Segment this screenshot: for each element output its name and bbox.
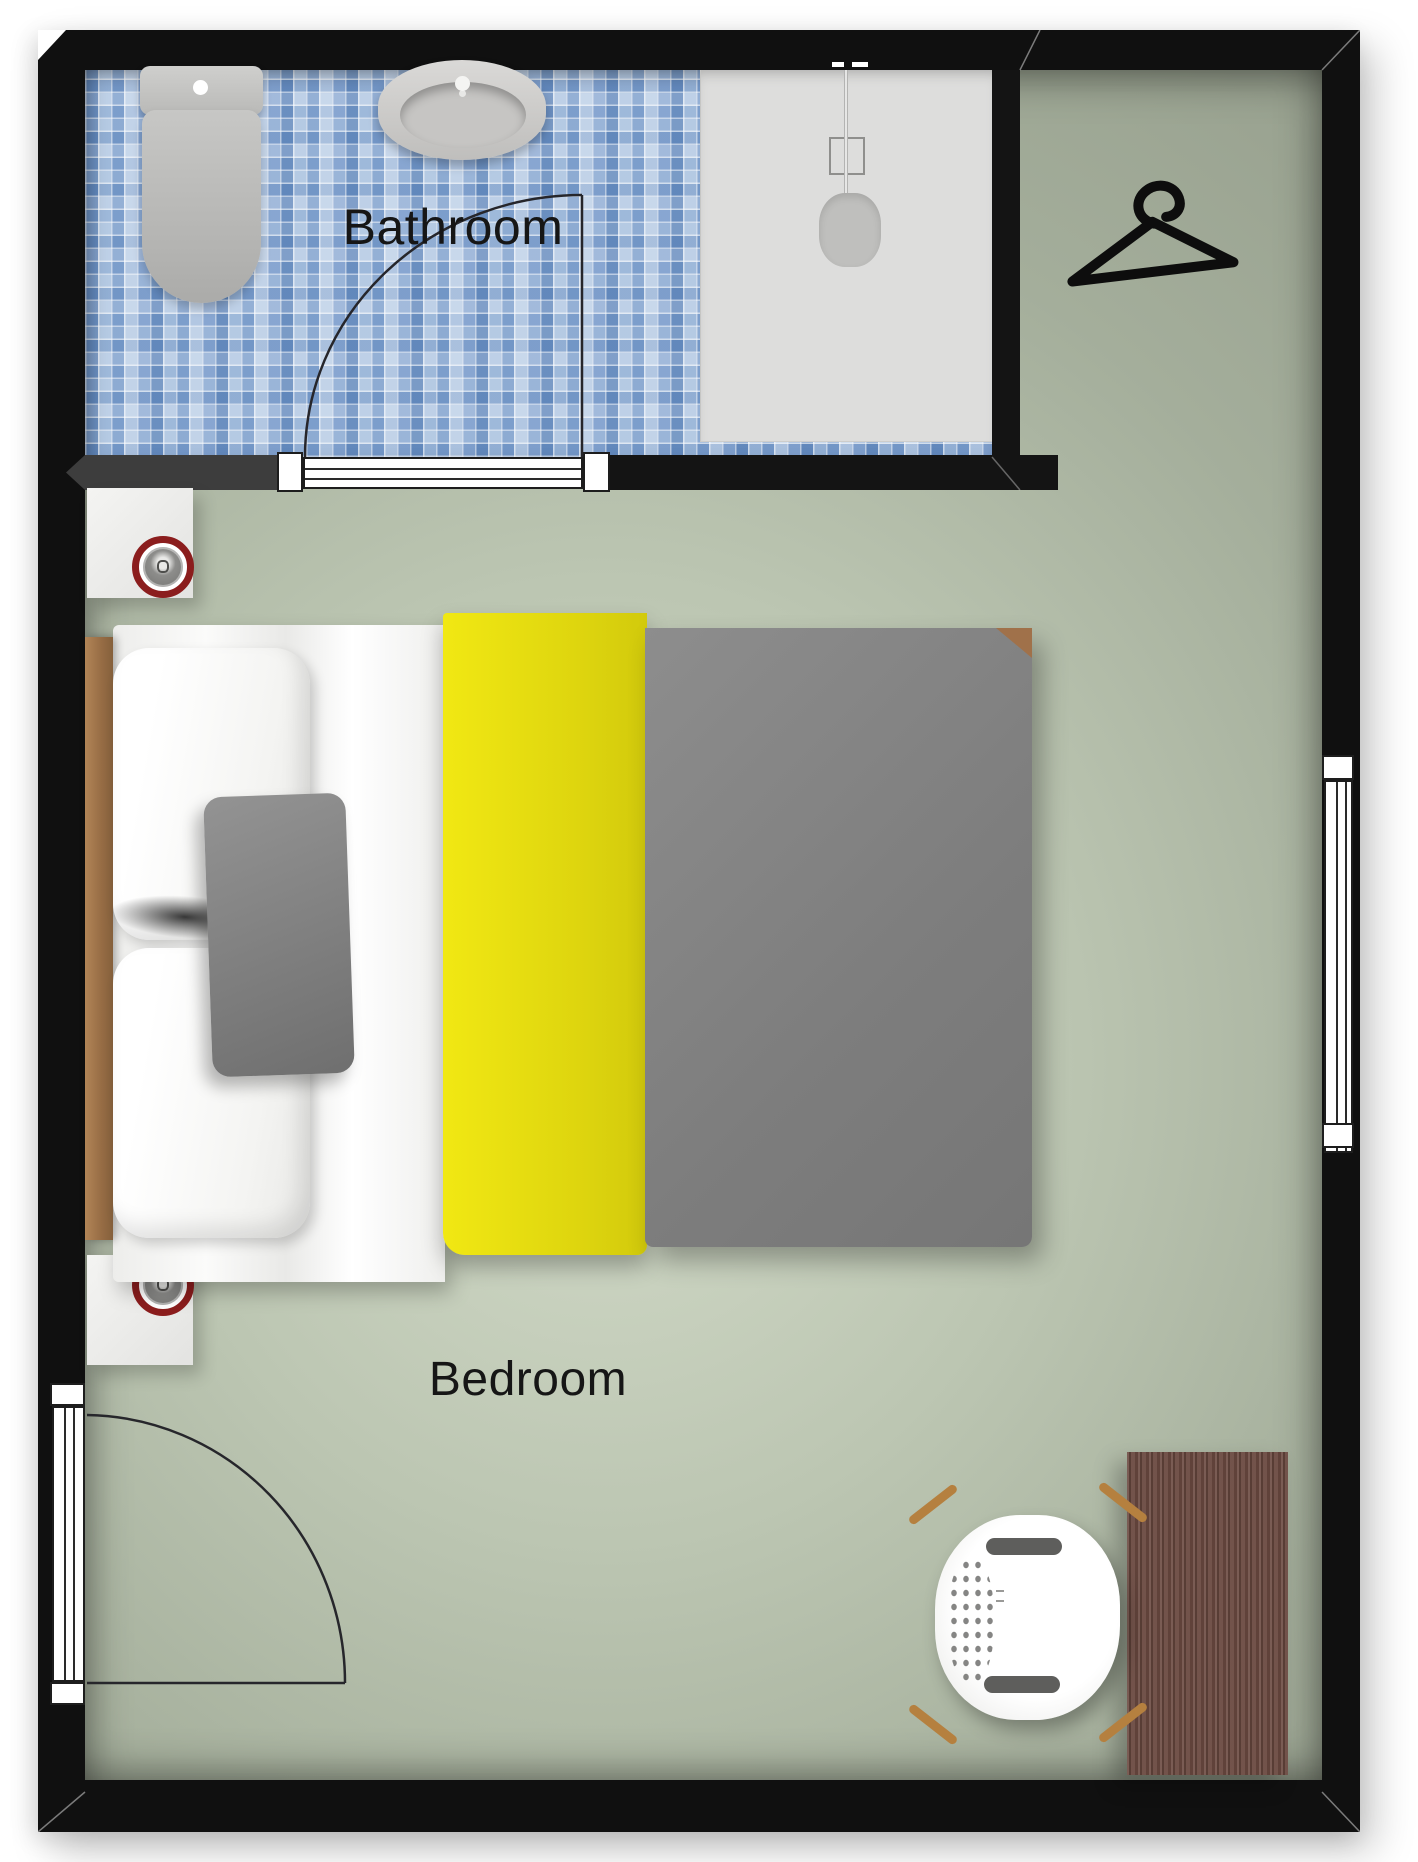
- door-swing-overlay: [38, 30, 1360, 1832]
- wall-miter-line: [1322, 1792, 1360, 1832]
- wall-miter-line: [992, 457, 1020, 490]
- entry-door-arc: [87, 1415, 345, 1683]
- wall-miter-line: [1322, 30, 1360, 70]
- bathroom-label: Bathroom: [278, 198, 628, 256]
- bedroom-label: Bedroom: [318, 1352, 738, 1407]
- wall-miter-line: [38, 1792, 85, 1832]
- wall-miter-line: [1020, 30, 1040, 70]
- floor-plan-outer-walls: Bathroom Bedroom: [38, 30, 1360, 1832]
- floor-plan-canvas: Bathroom Bedroom: [0, 0, 1418, 1862]
